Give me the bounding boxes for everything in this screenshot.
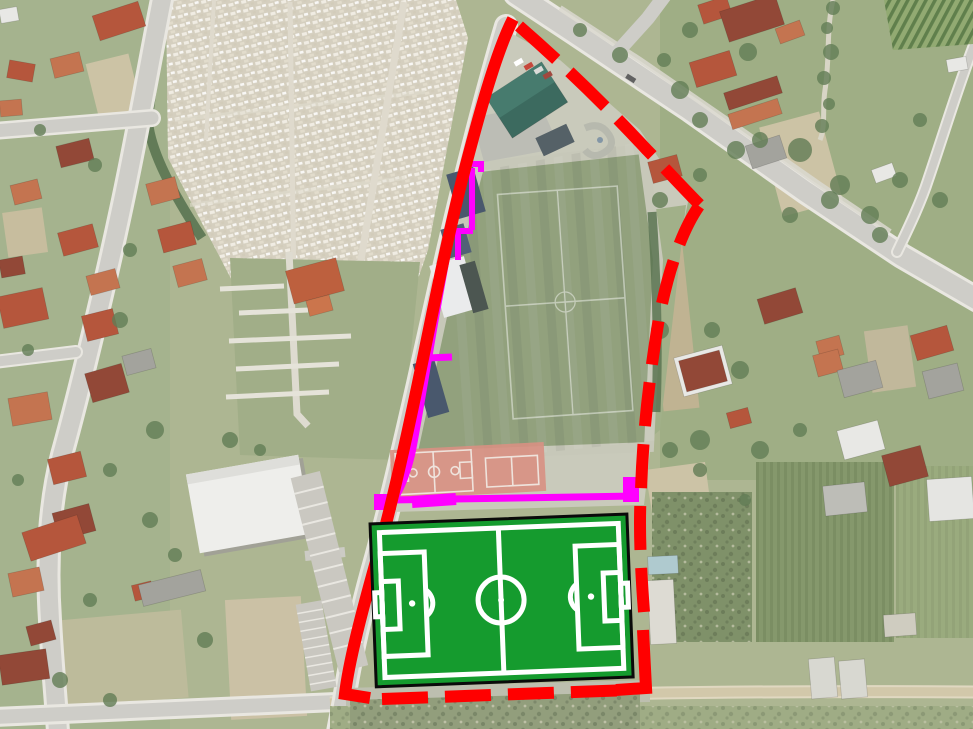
map-canvas	[0, 0, 973, 729]
aerial-map-view	[0, 0, 973, 729]
planned-pitch-overlay	[370, 514, 633, 687]
